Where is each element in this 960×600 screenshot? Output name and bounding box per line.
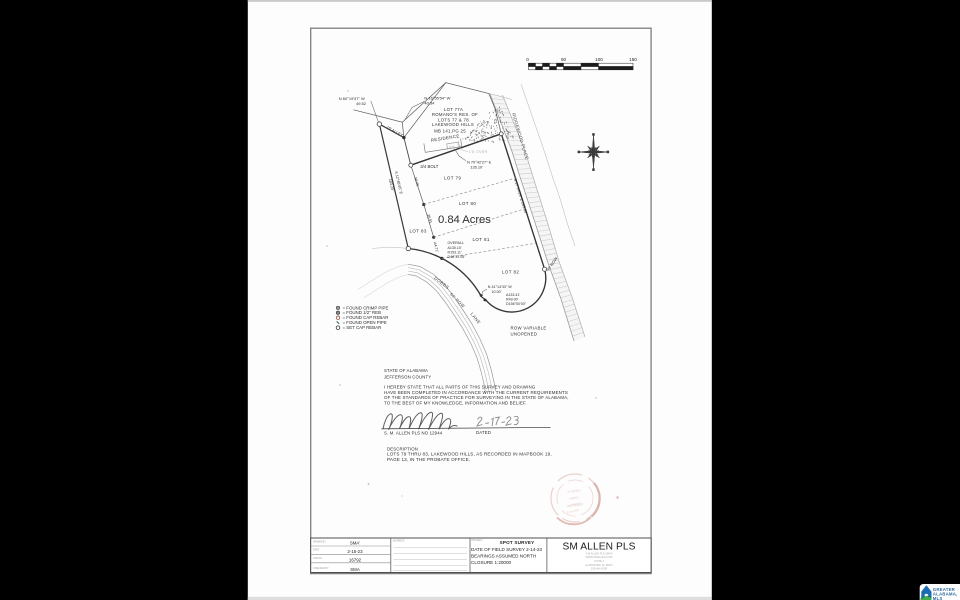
svg-text:150: 150 — [629, 57, 637, 62]
svg-text:CHECKED BY: CHECKED BY — [313, 567, 329, 570]
svg-text:LAKEWOOD HILLS: LAKEWOOD HILLS — [432, 122, 474, 127]
svg-text:SMA': SMA' — [350, 541, 361, 546]
svg-text:3/4 BOLT: 3/4 BOLT — [420, 164, 438, 169]
svg-text:DATED: DATED — [476, 430, 491, 435]
svg-text:SPOT SURVEY: SPOT SURVEY — [500, 540, 535, 545]
svg-text:ROMANO'S RES. OF: ROMANO'S RES. OF — [432, 112, 478, 117]
svg-text:OVERALL: OVERALL — [448, 241, 465, 245]
svg-text:PAGE 13, IN THE PROBATE OFFICE: PAGE 13, IN THE PROBATE OFFICE. — [387, 457, 470, 462]
svg-text:LOTS 79 THRU 83, LAKEWOOD HILL: LOTS 79 THRU 83, LAKEWOOD HILLS, AS RECO… — [387, 452, 552, 457]
svg-text:49.52: 49.52 — [356, 101, 367, 106]
svg-text:R153.11': R153.11' — [448, 250, 462, 254]
svg-text:UNOPENED: UNOPENED — [511, 331, 538, 336]
svg-text:DESCRIPTION: DESCRIPTION — [387, 446, 418, 451]
svg-text:LOT 80: LOT 80 — [459, 201, 476, 206]
svg-text:SUITE 4: SUITE 4 — [594, 559, 604, 563]
svg-text:LOT 79: LOT 79 — [444, 176, 461, 181]
svg-text:= SET CAP REBAR: = SET CAP REBAR — [343, 325, 382, 330]
svg-text:ROW VARIABLE: ROW VARIABLE — [511, 326, 547, 331]
svg-text:HAVE BEEN COMPLETED IN ACCORDA: HAVE BEEN COMPLETED IN ACCORDANCE WITH T… — [384, 390, 568, 395]
svg-text:BEARINGS ASSUMED NORTH: BEARINGS ASSUMED NORTH — [471, 553, 536, 558]
svg-text:126.10': 126.10' — [470, 165, 483, 170]
svg-text:A133.41': A133.41' — [506, 293, 520, 297]
svg-text:D48°41'05": D48°41'05" — [448, 255, 467, 259]
svg-text:TO THE BEST OF MY KNOWLEDGE, I: TO THE BEST OF MY KNOWLEDGE, INFORMATION… — [384, 401, 527, 406]
svg-text:I HEREBY STATE THAT ALL PARTS: I HEREBY STATE THAT ALL PARTS OF THIS SU… — [384, 385, 536, 390]
svg-text:S. M. ALLEN PLS NO 12944: S. M. ALLEN PLS NO 12944 — [384, 431, 443, 436]
svg-text:SMA: SMA — [350, 567, 360, 572]
svg-text:A130.10': A130.10' — [448, 246, 462, 250]
svg-text:205-664-0099: 205-664-0099 — [591, 567, 608, 571]
svg-text:OF THE STANDARDS OF PRACTICE F: OF THE STANDARDS OF PRACTICE FOR SURVEYI… — [384, 395, 569, 400]
svg-text:LOT 82: LOT 82 — [502, 270, 519, 275]
svg-text:PROJECT: PROJECT — [472, 539, 484, 542]
svg-text:2-15-23: 2-15-23 — [347, 549, 363, 554]
svg-text:16792: 16792 — [349, 557, 362, 562]
svg-text:S M ALLEN PLS QRVA: S M ALLEN PLS QRVA — [586, 551, 613, 555]
svg-text:0: 0 — [526, 57, 529, 62]
svg-text:JEFFERSON COUNTY: JEFFERSON COUNTY — [384, 375, 431, 380]
svg-text:DATE: DATE — [313, 549, 320, 552]
svg-text:DATE OF FIELD SURVEY 2-14-23: DATE OF FIELD SURVEY 2-14-23 — [471, 547, 542, 552]
svg-text:100: 100 — [595, 57, 603, 62]
svg-text:R49.00': R49.00' — [506, 298, 519, 302]
svg-text:WWW.SMALLEN.COM: WWW.SMALLEN.COM — [586, 555, 613, 559]
svg-text:D156°00'00": D156°00'00" — [506, 302, 527, 306]
svg-text:STATE OF ALABAMA: STATE OF ALABAMA — [384, 368, 428, 373]
svg-text:LOT 83: LOT 83 — [410, 229, 427, 234]
svg-text:ADDRESS: ADDRESS — [393, 540, 405, 543]
svg-text:50: 50 — [561, 57, 567, 62]
svg-text:DRAWN BY: DRAWN BY — [313, 540, 326, 543]
svg-text:N 41°14'33" W: N 41°14'33" W — [488, 285, 513, 289]
svg-text:10.00': 10.00' — [492, 290, 502, 294]
svg-text:ALABASTER, AL 35007: ALABASTER, AL 35007 — [585, 563, 613, 567]
svg-text:JOB NO: JOB NO — [313, 557, 322, 560]
svg-text:MB 141,PG 25: MB 141,PG 25 — [434, 129, 466, 134]
svg-text:MLS: MLS — [933, 596, 943, 600]
svg-text:40.54: 40.54 — [424, 101, 435, 106]
svg-text:1'8 OVER: 1'8 OVER — [469, 150, 488, 154]
svg-text:0.84 Acres: 0.84 Acres — [438, 214, 491, 226]
svg-text:CLOSURE 1:20000: CLOSURE 1:20000 — [471, 560, 512, 565]
svg-text:LOT 81: LOT 81 — [473, 237, 490, 242]
svg-text:SM ALLEN PLS: SM ALLEN PLS — [562, 542, 635, 553]
